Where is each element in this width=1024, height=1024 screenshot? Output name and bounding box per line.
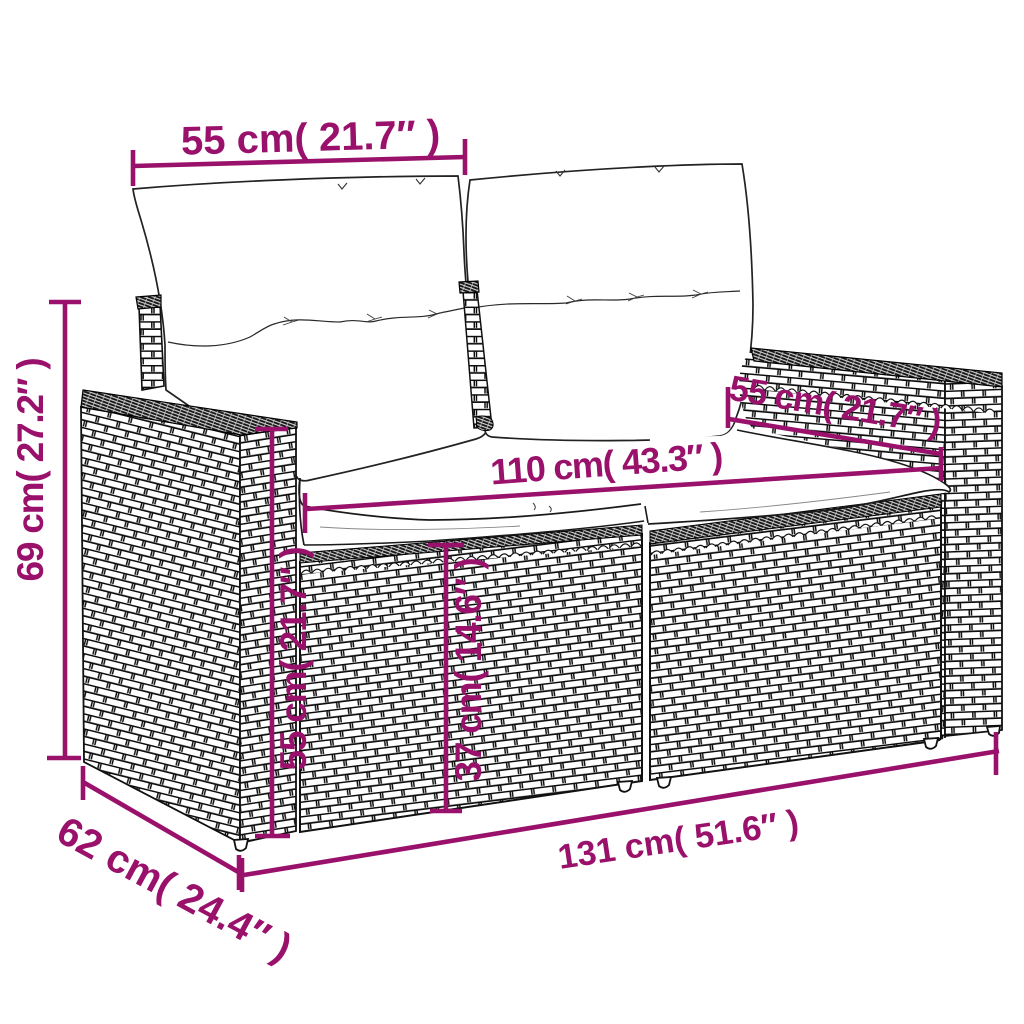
svg-text:55 cm( 21.7″ ): 55 cm( 21.7″ ) <box>273 547 314 770</box>
svg-text:37 cm( 14.6″ ): 37 cm( 14.6″ ) <box>448 558 489 781</box>
svg-text:69 cm( 27.2″ ): 69 cm( 27.2″ ) <box>10 358 51 581</box>
svg-text:55 cm( 21.7″ ): 55 cm( 21.7″ ) <box>180 112 440 163</box>
